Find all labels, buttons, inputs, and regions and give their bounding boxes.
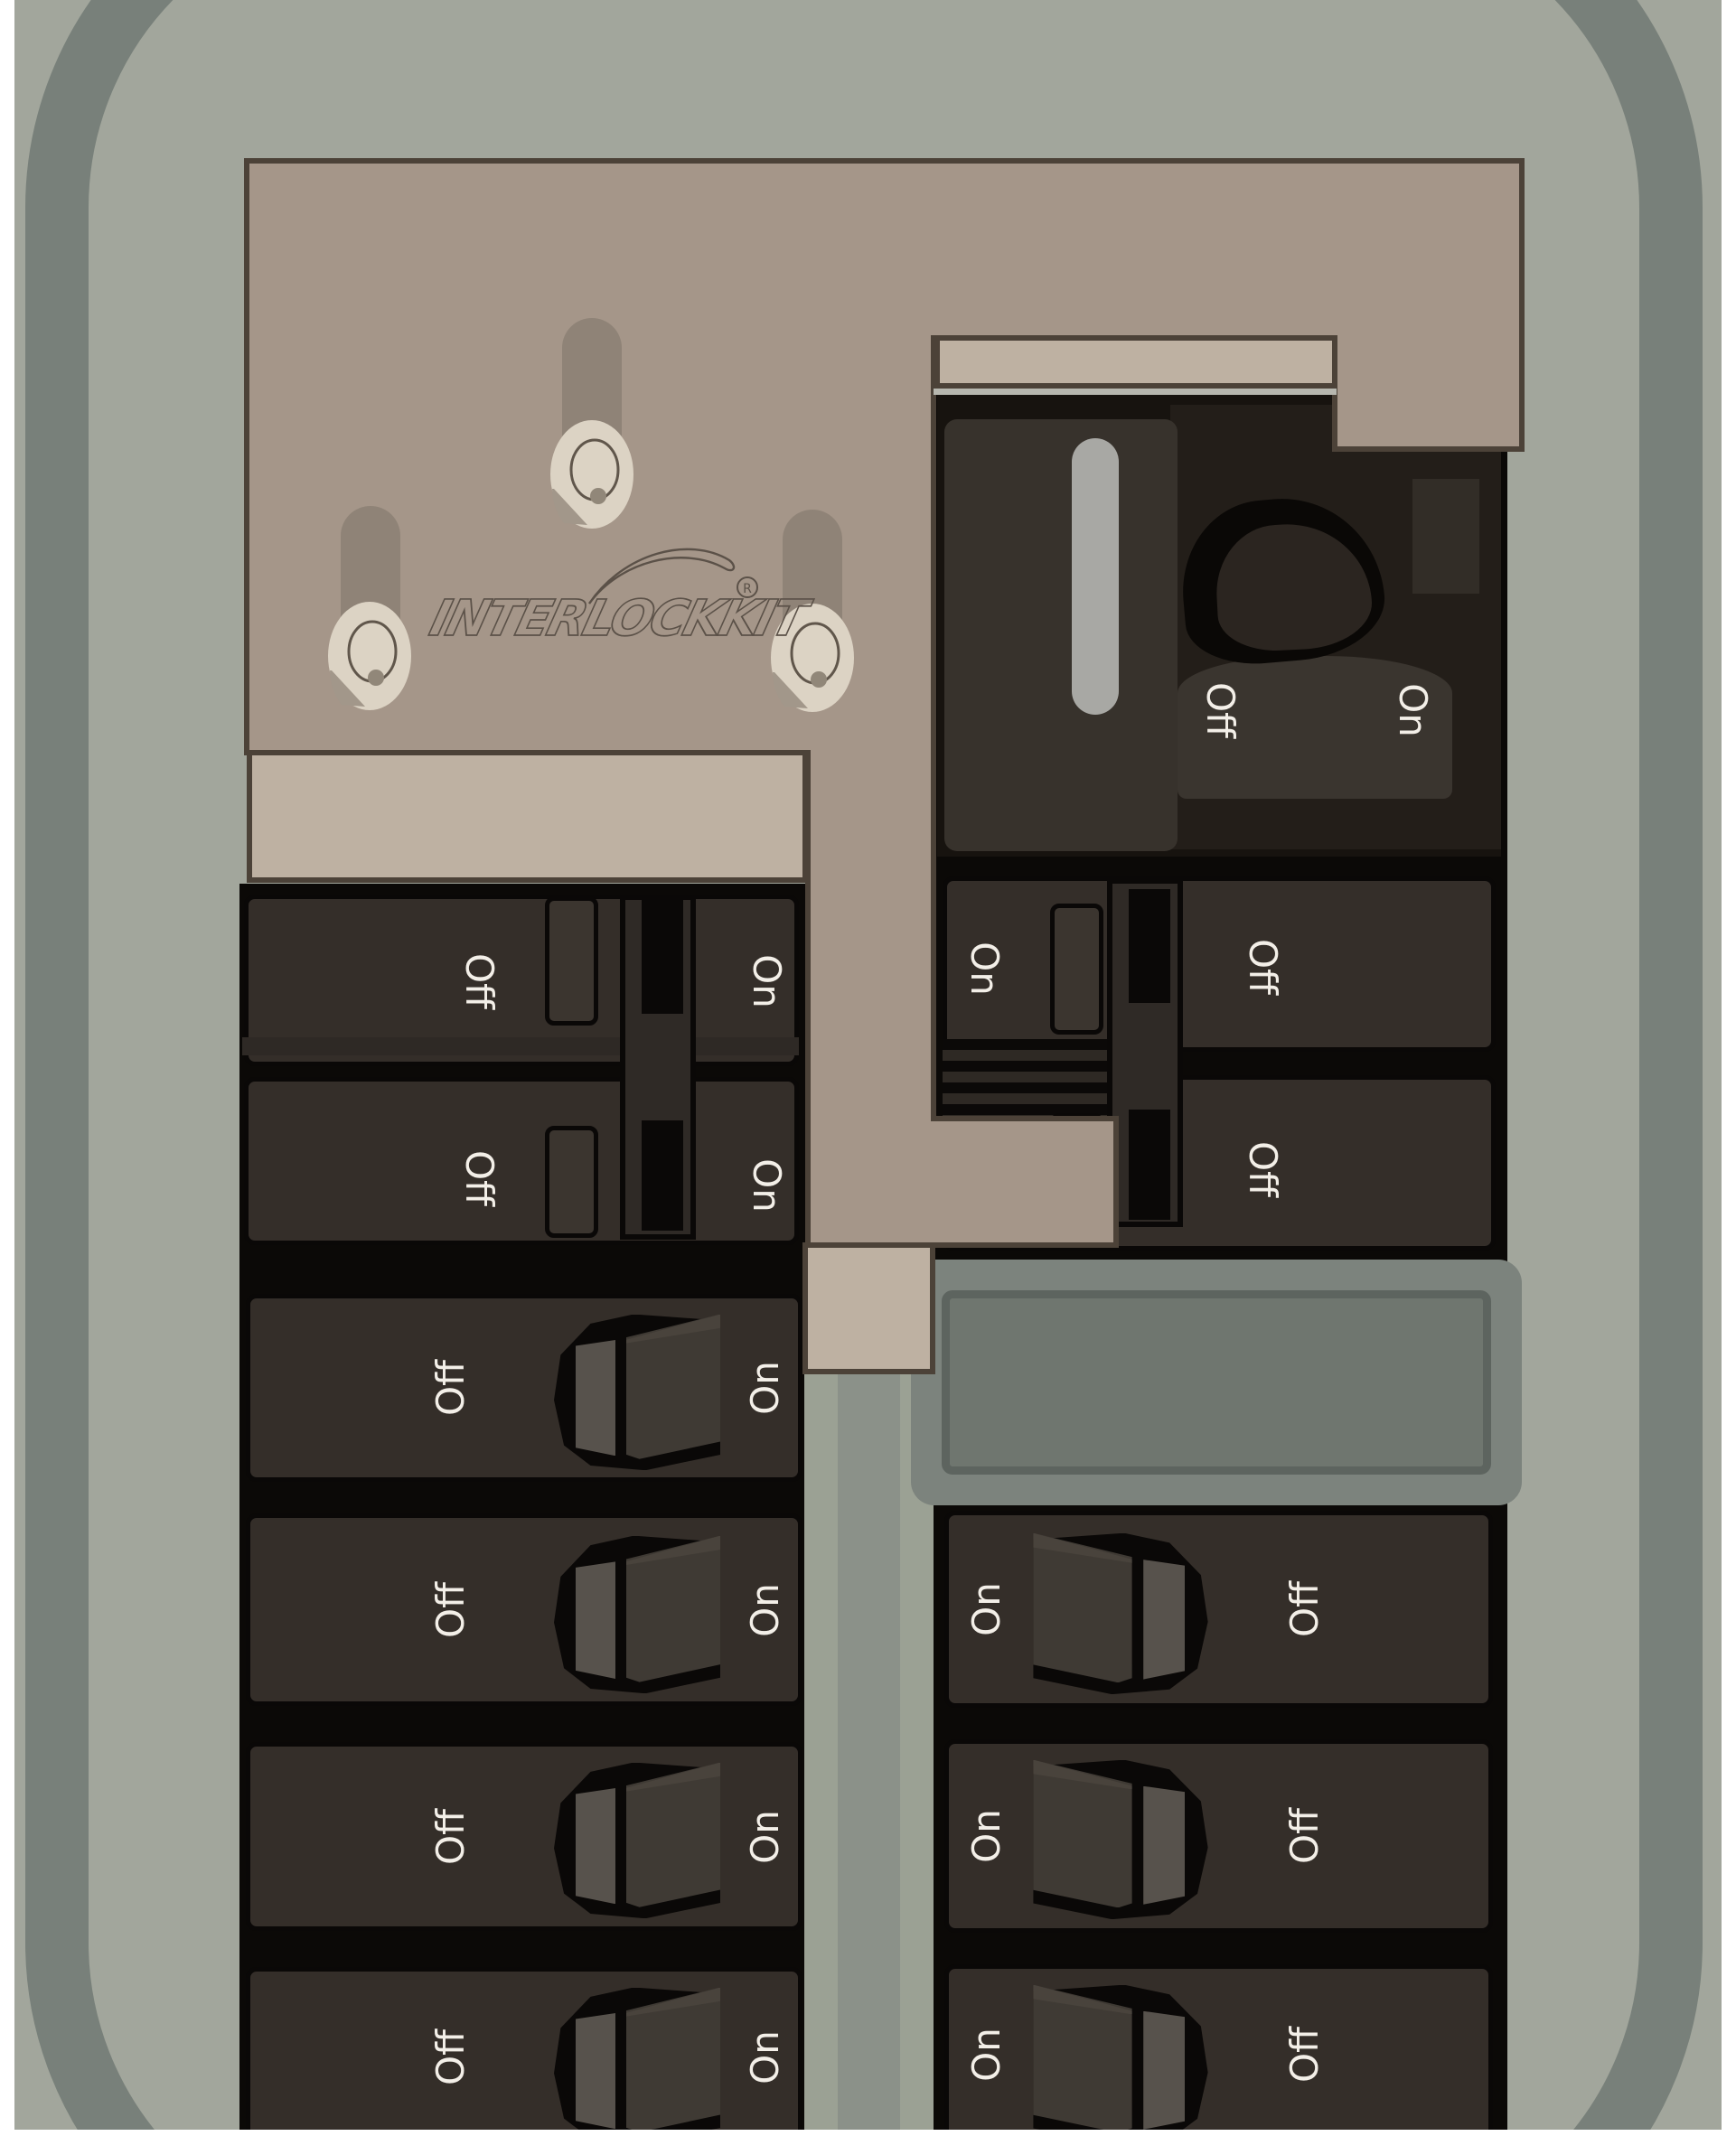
label-on: On — [746, 913, 787, 1049]
label-on: On — [966, 1987, 1008, 2122]
label-off: Off — [430, 1320, 472, 1456]
label-off: Off — [1284, 1768, 1326, 1904]
label-on: On — [746, 1118, 787, 1253]
branch-breaker: Off On — [246, 1967, 802, 2136]
label-on: On — [963, 901, 1005, 1036]
label-off: Off — [1199, 642, 1241, 778]
handle-side-face — [576, 1340, 615, 1456]
label-on: On — [966, 1768, 1008, 1904]
tie-slot — [642, 1120, 683, 1231]
label-off: Off — [1284, 1987, 1326, 2122]
label-on: On — [745, 1542, 786, 1678]
handle-grip — [545, 1126, 598, 1238]
tie-slot — [642, 900, 683, 1014]
label-off: Off — [430, 1542, 472, 1678]
label-off: Off — [1284, 1541, 1326, 1677]
breaker-switch-handle[interactable] — [1026, 1757, 1215, 1921]
label-on: On — [745, 1769, 786, 1905]
two-pole-breaker-left: Off On Off On — [242, 887, 806, 1256]
main-breaker-handle-slot — [1072, 438, 1119, 715]
branch-breaker: Off On — [246, 1742, 802, 1931]
label-off: Off — [1242, 1101, 1283, 1237]
handle-grip — [1050, 1113, 1103, 1231]
main-breaker-face — [944, 419, 1178, 851]
branch-breaker: On Off — [944, 1964, 1493, 2136]
two-pole-breaker-right: On Off Off — [937, 871, 1501, 1254]
branch-breaker: Off On — [246, 1294, 802, 1482]
handle-grip — [545, 896, 598, 1026]
label-on: On — [745, 1990, 786, 2125]
breaker-switch-handle[interactable] — [1026, 1981, 1215, 2136]
tie-slot — [1129, 1110, 1170, 1220]
branch-breaker: Off On — [246, 1513, 802, 1706]
breaker-grooves — [943, 1039, 1123, 1117]
blank-cover-plate-inner — [942, 1290, 1491, 1475]
label-off: Off — [458, 913, 500, 1049]
left-edge-strip — [0, 0, 14, 2136]
tie-slot — [1129, 889, 1170, 1003]
handle-side-face — [1143, 1786, 1185, 1905]
breaker-switch-handle[interactable] — [547, 1311, 727, 1472]
right-edge-strip — [1722, 0, 1736, 2136]
breaker-panel-illustration: Off On Off On Off On Off On — [0, 0, 1736, 2136]
breaker-groove — [242, 1037, 799, 1055]
handle-side-face — [1143, 1560, 1185, 1679]
main-breaker-block — [1412, 479, 1479, 594]
label-off: Off — [458, 1110, 500, 1246]
main-breaker: Off On — [937, 378, 1501, 857]
breaker-switch-handle[interactable] — [547, 1759, 727, 1920]
handle-grip — [1050, 904, 1103, 1035]
label-on: On — [745, 1320, 786, 1456]
handle-side-face — [1143, 2011, 1185, 2130]
branch-breaker: On Off — [944, 1511, 1493, 1708]
breaker-switch-handle[interactable] — [1026, 1530, 1215, 1696]
label-off: Off — [430, 1990, 472, 2125]
bottom-edge-strip — [0, 2130, 1736, 2136]
label-off: Off — [1242, 899, 1283, 1035]
label-on: On — [1392, 642, 1433, 778]
label-off: Off — [430, 1769, 472, 1905]
breaker-pole-face — [943, 876, 1496, 1052]
branch-breaker: On Off — [944, 1739, 1493, 1933]
blank-cover-plate — [911, 1260, 1522, 1505]
label-on: On — [966, 1541, 1008, 1677]
handle-side-face — [576, 2013, 615, 2129]
breaker-switch-handle[interactable] — [547, 1984, 727, 2136]
breaker-pole-face — [244, 1077, 799, 1245]
breaker-switch-handle[interactable] — [547, 1532, 727, 1695]
handle-side-face — [576, 1788, 615, 1904]
handle-side-face — [576, 1561, 615, 1679]
